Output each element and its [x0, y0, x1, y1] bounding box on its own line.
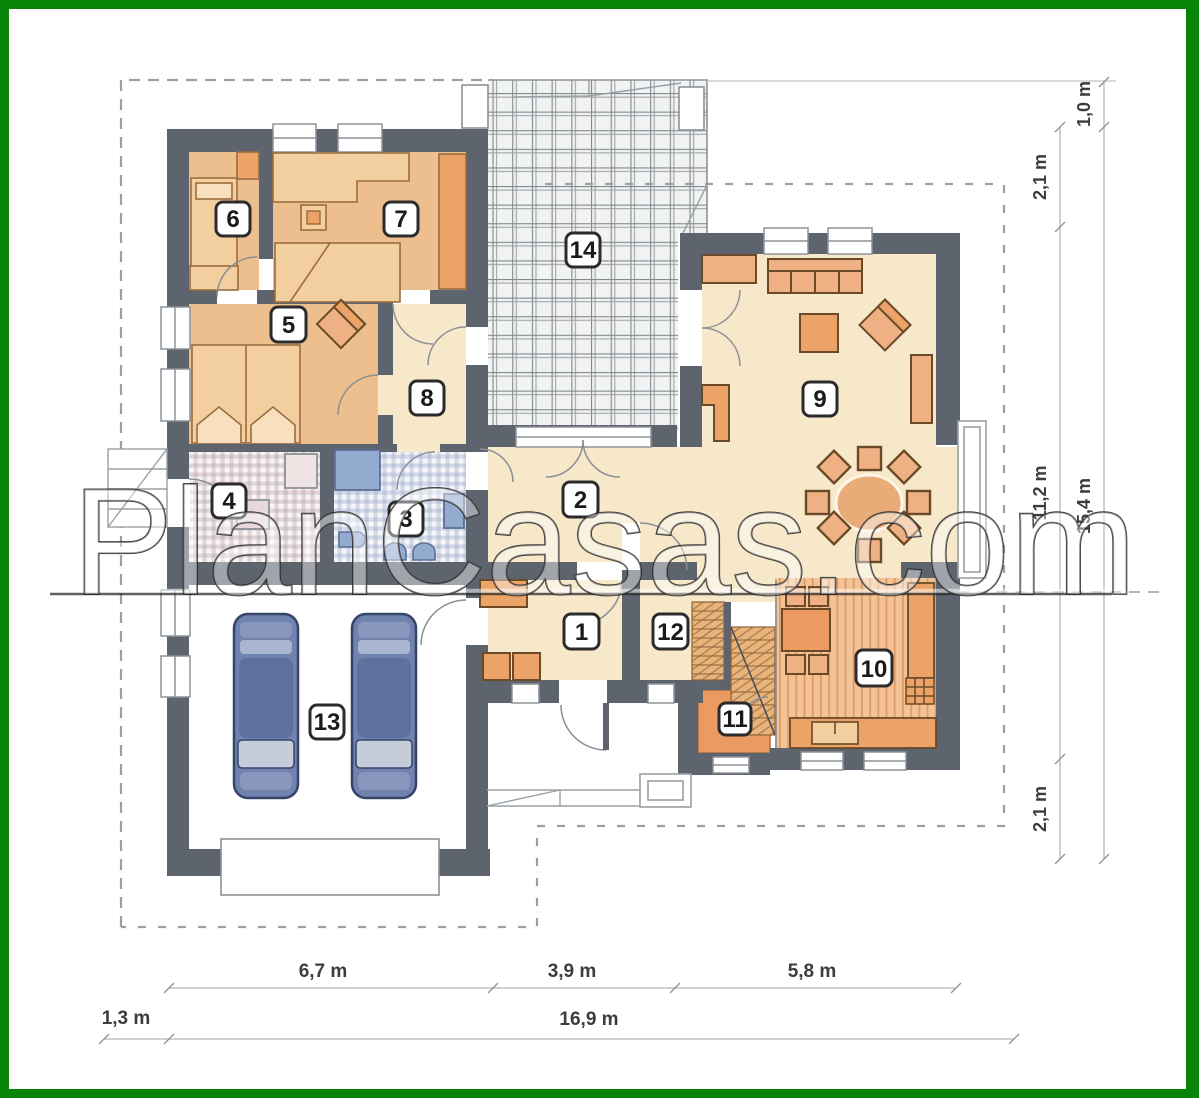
svg-text:16,9 m: 16,9 m: [559, 1009, 618, 1030]
svg-text:11: 11: [722, 706, 747, 733]
svg-text:1,0 m: 1,0 m: [1074, 81, 1094, 127]
svg-text:2,1 m: 2,1 m: [1030, 786, 1050, 832]
svg-text:PlanCasas.com: PlanCasas.com: [72, 457, 1136, 627]
svg-text:7: 7: [394, 206, 407, 233]
svg-text:13: 13: [314, 709, 341, 736]
svg-text:3,9 m: 3,9 m: [548, 961, 597, 982]
svg-text:9: 9: [813, 386, 826, 413]
svg-text:6: 6: [226, 206, 239, 233]
svg-text:8: 8: [420, 385, 433, 412]
svg-text:14: 14: [570, 237, 597, 264]
svg-text:5: 5: [282, 312, 295, 339]
svg-text:10: 10: [861, 656, 888, 683]
svg-text:1,3 m: 1,3 m: [102, 1008, 151, 1029]
svg-text:6,7 m: 6,7 m: [299, 961, 348, 982]
svg-text:5,8 m: 5,8 m: [788, 961, 837, 982]
svg-text:2,1 m: 2,1 m: [1030, 154, 1050, 200]
